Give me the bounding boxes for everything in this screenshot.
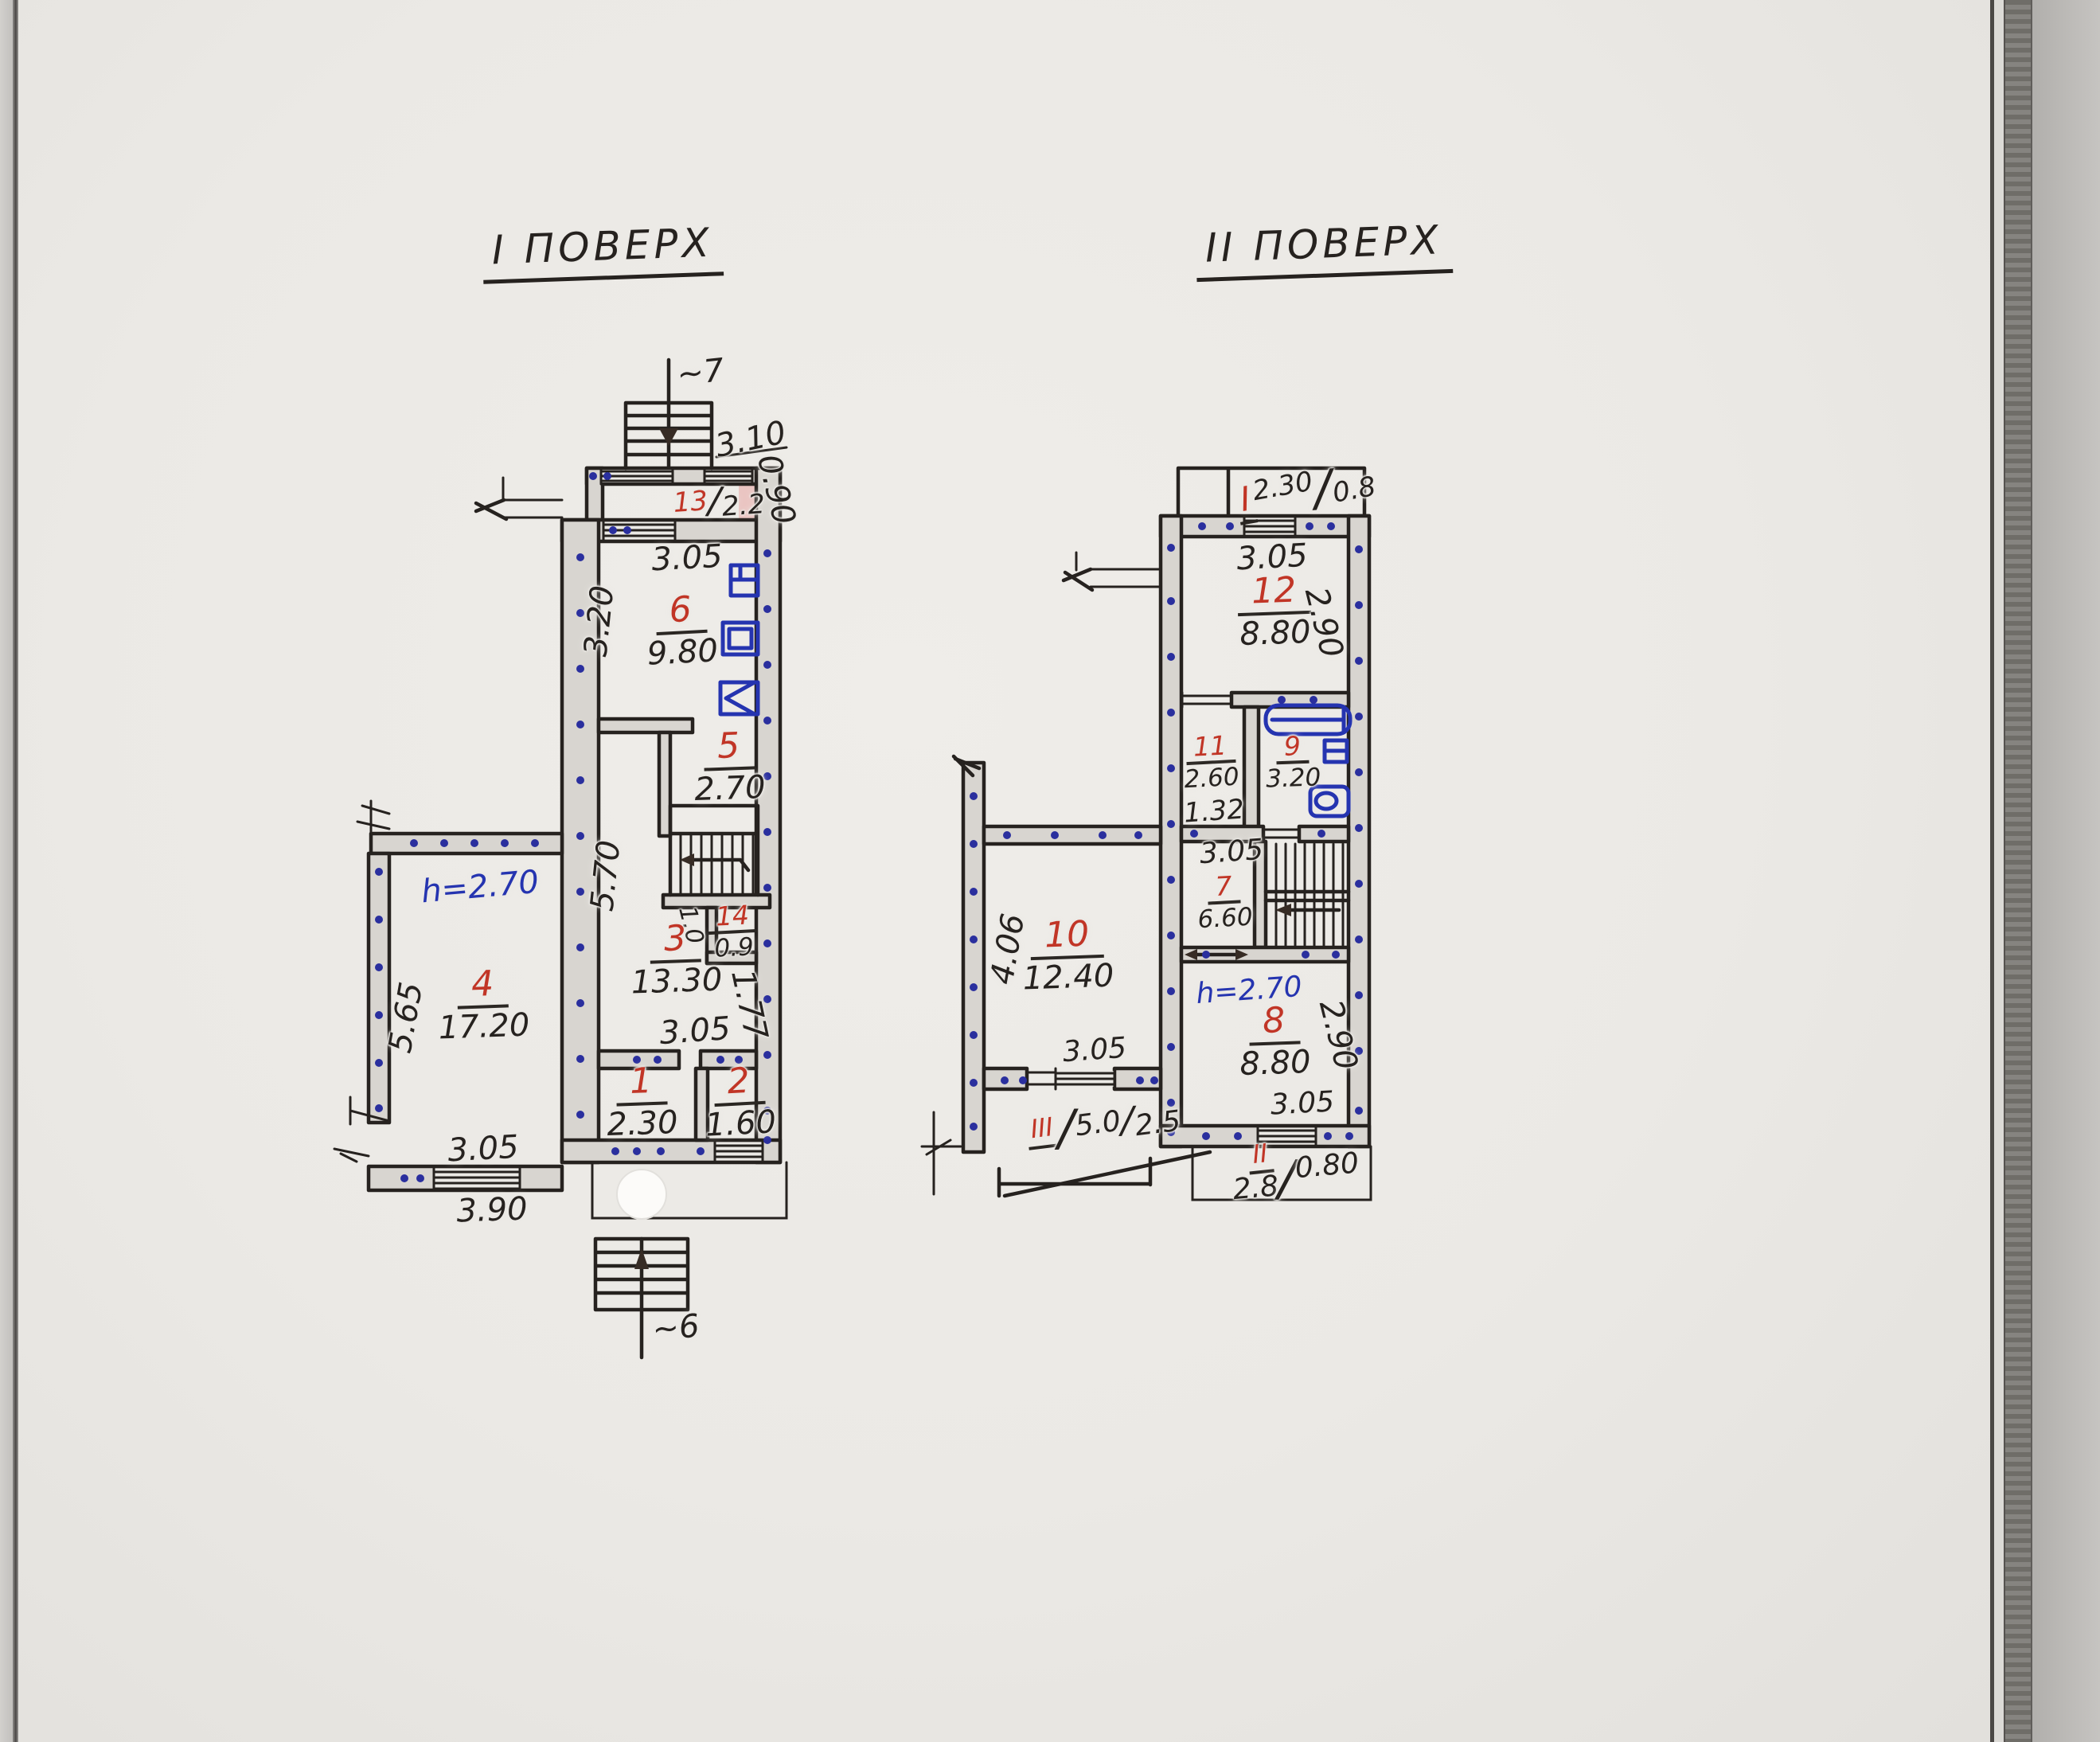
- dim-room10-width: 3.05: [1062, 1032, 1128, 1068]
- dim-room3-width: 3.05: [658, 1010, 732, 1052]
- dim-hall-width: 3.05: [1199, 834, 1265, 870]
- floor1-title: I ПОВЕРХ: [482, 219, 724, 283]
- balcony-depth: 0.80: [1294, 1147, 1360, 1185]
- dim-room11-width: 1.32: [1183, 793, 1245, 829]
- room-number: 11: [1185, 732, 1235, 765]
- room10-label: 10 12.40: [1021, 916, 1114, 995]
- room-area: 8.80: [1239, 1046, 1311, 1080]
- room-area: 8.80: [1238, 616, 1312, 650]
- scanned-floorplan-page: I ПОВЕРХ ~7 3.10 0.90 13 / 2.2 3.05 3.20…: [0, 0, 2100, 1742]
- room7-label: 7 6.60: [1196, 872, 1254, 933]
- slash: /: [708, 486, 721, 515]
- binding-outer-strip: [2032, 0, 2100, 1742]
- room-number: 6: [654, 592, 708, 635]
- stairs-down-label: ~6: [651, 1308, 701, 1349]
- slash: /: [1278, 1158, 1296, 1198]
- dim-room6-depth: 3.20: [577, 584, 621, 658]
- room12-label: 12 8.80: [1236, 572, 1312, 650]
- room-area: 12.40: [1022, 959, 1114, 994]
- room-area: 2.30: [607, 1107, 678, 1141]
- room-number: 7: [1207, 872, 1241, 904]
- room-area: 2.2: [721, 488, 767, 523]
- room3-label: 3 13.30: [629, 920, 723, 999]
- room6-label: 6 9.80: [644, 591, 719, 670]
- room-area: 6.60: [1197, 905, 1254, 933]
- room-number: 9: [1275, 732, 1309, 764]
- floor2-title: II ПОВЕРХ: [1195, 217, 1453, 282]
- dim-room6-width: 3.05: [650, 538, 723, 579]
- room5-label: 5 2.70: [693, 728, 766, 806]
- floor1-interior-stairs: [670, 806, 758, 895]
- floor2-interior-stairs: [1266, 844, 1349, 946]
- room11-label: 11 2.60: [1182, 732, 1240, 793]
- room9-label: 9 3.20: [1264, 732, 1321, 791]
- room-number: 4: [456, 966, 509, 1009]
- room13-label: 13 / 2.2: [672, 481, 765, 519]
- room-number: 3: [649, 920, 701, 963]
- room-number: 13: [672, 485, 708, 519]
- room-number: 2: [712, 1063, 766, 1107]
- slash: /: [1121, 1106, 1134, 1135]
- balcony-width: 2.8: [1232, 1170, 1280, 1207]
- page-left-margin: [0, 0, 13, 1742]
- slash: /: [1313, 468, 1333, 509]
- book-binding-strip: [2004, 0, 2032, 1742]
- terrace-number: III: [1025, 1111, 1060, 1150]
- room4-label: 4 17.20: [436, 966, 530, 1045]
- page-left-edge-line: [13, 0, 18, 1742]
- slash: /: [1058, 1108, 1075, 1148]
- white-sticker-dot: [617, 1170, 666, 1219]
- room-area: 1.60: [705, 1106, 777, 1142]
- room-area: 17.20: [438, 1009, 530, 1044]
- room-area: 9.80: [646, 635, 719, 670]
- terrace-depth: 2.5: [1134, 1105, 1183, 1143]
- room-number: 8: [1247, 1002, 1300, 1045]
- dim-hall-depth: 5.70: [584, 838, 627, 912]
- room-area: 2.60: [1184, 765, 1240, 793]
- floorplan-drawing: [0, 0, 2100, 1742]
- dim-porch-width: 3.90: [456, 1190, 529, 1229]
- room8-label: 8 8.80: [1238, 1002, 1311, 1080]
- room2-label: 2 1.60: [702, 1062, 777, 1142]
- room-number: 10: [1029, 916, 1104, 960]
- dim-room4-width: 3.05: [447, 1129, 519, 1170]
- floor1-room6-fixtures: [720, 565, 758, 714]
- stairs-up-label: ~7: [675, 352, 725, 393]
- edge-gap: [1994, 0, 2004, 1742]
- room-area: 2.70: [694, 771, 766, 806]
- room-area: 3.20: [1266, 765, 1321, 791]
- dim-room8-width: 3.05: [1270, 1085, 1335, 1121]
- room-number: 1: [615, 1063, 667, 1106]
- room1-label: 1 2.30: [605, 1063, 678, 1141]
- floor2-section-marks: [954, 553, 1161, 775]
- terrace-width: 5.0: [1073, 1105, 1122, 1143]
- room-area: 13.30: [630, 963, 723, 998]
- room-number: 5: [702, 728, 755, 771]
